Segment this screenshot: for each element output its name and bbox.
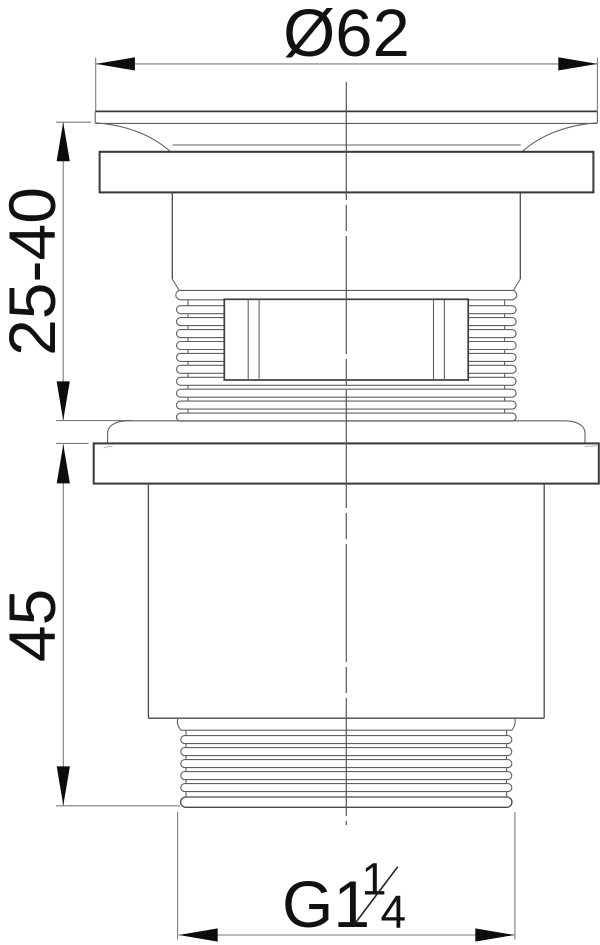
svg-text:G1: G1 bbox=[282, 867, 370, 941]
svg-text:Ø62: Ø62 bbox=[283, 0, 410, 71]
svg-text:4: 4 bbox=[381, 886, 407, 938]
svg-text:25-40: 25-40 bbox=[0, 187, 69, 356]
svg-text:45: 45 bbox=[0, 589, 69, 662]
